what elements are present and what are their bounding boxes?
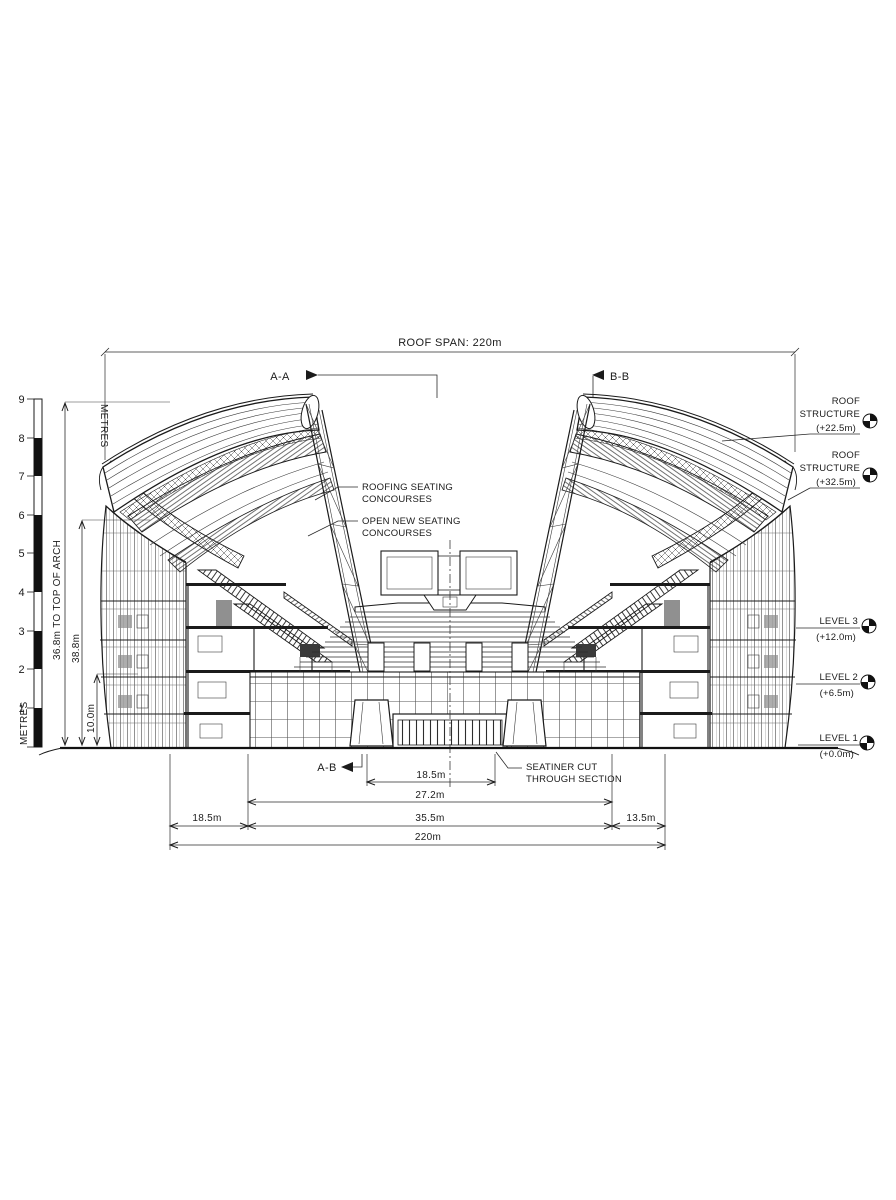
dim-lower-height: 10.0m (86, 704, 97, 733)
ground-line (39, 748, 859, 755)
video-screen-right (460, 551, 517, 595)
svg-text:(+0.0m): (+0.0m) (820, 749, 854, 760)
metres-label-bottom: METRES (19, 702, 30, 745)
svg-text:OPEN NEW SEATING: OPEN NEW SEATING (362, 516, 461, 527)
svg-text:SEATINER CUT: SEATINER CUT (526, 762, 597, 773)
svg-text:ROOFING SEATING: ROOFING SEATING (362, 482, 453, 493)
dim-mid: 27.2m (415, 790, 444, 801)
callout-level1: LEVEL 1 (+0.0m) (798, 733, 874, 760)
callout-level2: LEVEL 2 (+6.5m) (796, 672, 875, 699)
svg-text:STRUCTURE: STRUCTURE (800, 463, 860, 474)
svg-text:4: 4 (18, 587, 25, 599)
stadium-section-drawing: ROOF SPAN: 220m A-A B-B A-B (0, 0, 896, 1200)
left-pylon (350, 700, 393, 746)
svg-text:(+12.0m): (+12.0m) (816, 632, 856, 643)
annotation-seating-cut: SEATINER CUT THROUGH SECTION (496, 752, 622, 785)
svg-text:CONCOURSES: CONCOURSES (362, 494, 432, 505)
svg-text:2: 2 (18, 664, 25, 676)
section-marker-ab: A-B (317, 754, 362, 774)
dim-arch-height: 36.8m TO TOP OF ARCH (52, 540, 63, 660)
svg-text:A-A: A-A (270, 371, 290, 383)
svg-text:7: 7 (18, 471, 25, 483)
svg-text:(+6.5m): (+6.5m) (820, 688, 854, 699)
svg-text:(+22.5m): (+22.5m) (816, 423, 856, 434)
metres-label-top: METRES (98, 404, 109, 447)
svg-text:(+32.5m): (+32.5m) (816, 477, 856, 488)
callout-level3: LEVEL 3 (+12.0m) (796, 616, 876, 643)
svg-text:THROUGH SECTION: THROUGH SECTION (526, 774, 622, 785)
svg-text:8: 8 (18, 433, 25, 445)
dim-center: 35.5m (415, 813, 444, 824)
svg-text:ROOF: ROOF (832, 396, 860, 407)
dim-overall: 220m (415, 832, 441, 843)
dim-right: 13.5m (626, 813, 655, 824)
video-screen-left (381, 551, 438, 595)
section-marker-bb: B-B (592, 370, 630, 398)
roof-span-dimension: ROOF SPAN: 220m (398, 337, 502, 349)
svg-text:6: 6 (18, 510, 25, 522)
svg-text:ROOF: ROOF (832, 450, 860, 461)
callout-roof-lower: ROOF STRUCTURE (+32.5m) (788, 450, 877, 500)
svg-text:B-B: B-B (610, 371, 630, 383)
dim-inner: 18.5m (416, 770, 445, 781)
section-marker-aa: A-A (270, 370, 437, 398)
svg-text:A-B: A-B (317, 762, 337, 774)
svg-text:STRUCTURE: STRUCTURE (800, 409, 860, 420)
svg-text:LEVEL 1: LEVEL 1 (819, 733, 858, 744)
svg-text:LEVEL 2: LEVEL 2 (819, 672, 858, 683)
callout-roof-upper: ROOF STRUCTURE (+22.5m) (722, 396, 877, 441)
right-pylon (503, 700, 546, 746)
annotation-roofing-seating: ROOFING SEATING CONCOURSES (315, 482, 453, 505)
metric-scale-bar: 9 8 7 6 5 4 3 2 1 METRES METRES (18, 394, 109, 747)
video-screens (381, 551, 517, 610)
svg-text:5: 5 (18, 548, 25, 560)
stadium-section-sheet: ROOF SPAN: 220m A-A B-B A-B (0, 0, 896, 1200)
svg-text:CONCOURSES: CONCOURSES (362, 528, 432, 539)
svg-text:9: 9 (18, 394, 25, 406)
svg-text:LEVEL 3: LEVEL 3 (819, 616, 858, 627)
dim-overall-height: 38.8m (71, 634, 82, 663)
svg-text:3: 3 (18, 626, 25, 638)
dim-left: 18.5m (192, 813, 221, 824)
